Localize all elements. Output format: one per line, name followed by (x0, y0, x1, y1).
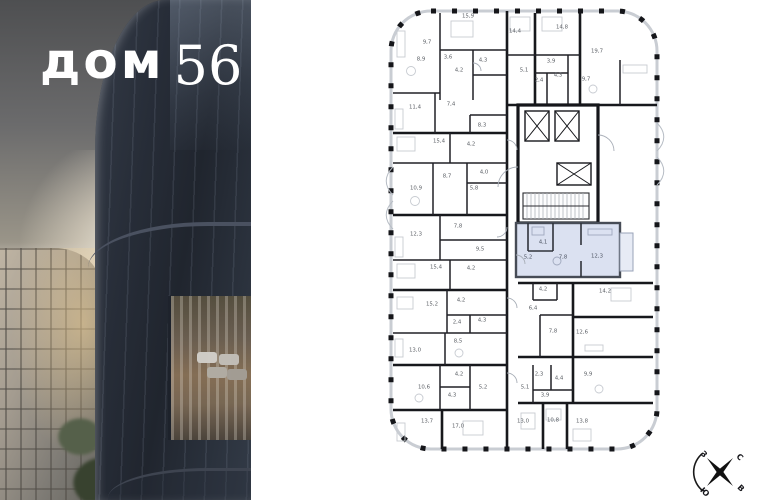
stairs-icon (523, 193, 589, 219)
compass-label-north: С (735, 452, 746, 463)
brand-logo: дом 56 (40, 36, 242, 93)
highlighted-apartment[interactable] (516, 223, 633, 277)
building-photo: дом 56 (0, 0, 251, 500)
compass-rose: С В Ю З (690, 446, 752, 498)
tower-interior-window (168, 296, 251, 440)
floor-plan-svg (385, 5, 665, 455)
compass-arc (694, 453, 703, 491)
apartment-balcony (620, 233, 633, 271)
compass-label-east: В (735, 483, 746, 494)
compass-star-icon (707, 458, 733, 486)
floor-plan[interactable]: 9,715,914,414,819,78,93,64,34,25,13,92,4… (385, 5, 665, 455)
logo-number: 56 (174, 39, 243, 93)
logo-word: дом (40, 36, 165, 86)
compass-label-west: З (699, 449, 710, 460)
